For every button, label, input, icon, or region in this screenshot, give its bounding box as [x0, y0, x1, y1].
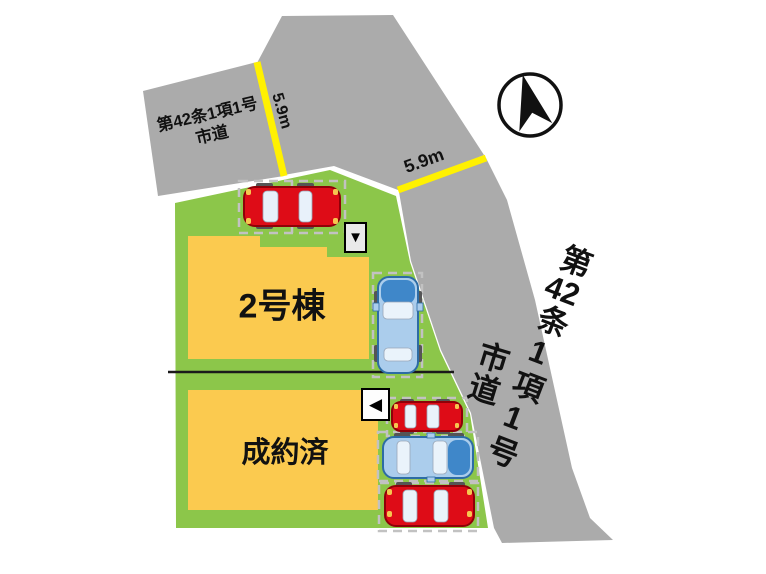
entrance-marker-plot2: ◀ — [361, 388, 390, 421]
entrance-marker-plot1: ▼ — [344, 222, 367, 253]
building-1-label: 2号棟 — [239, 279, 326, 328]
building-2-label: 成約済 — [241, 429, 328, 471]
car-blue-1 — [373, 277, 423, 373]
car-blue-2 — [383, 433, 473, 482]
site-plan: 第42条1項1号 市道 5.9m 5.9m 第42条1項1号 市道 2号棟 成約… — [0, 0, 766, 574]
car-red-3 — [385, 482, 474, 526]
down-triangle-icon: ▼ — [348, 229, 363, 246]
road-surface-north — [257, 15, 484, 190]
car-red-1 — [244, 183, 340, 229]
site-plan-drawing — [0, 0, 766, 574]
left-triangle-icon: ◀ — [369, 395, 382, 415]
car-red-2 — [392, 399, 462, 434]
north-arrow-icon — [499, 71, 561, 136]
